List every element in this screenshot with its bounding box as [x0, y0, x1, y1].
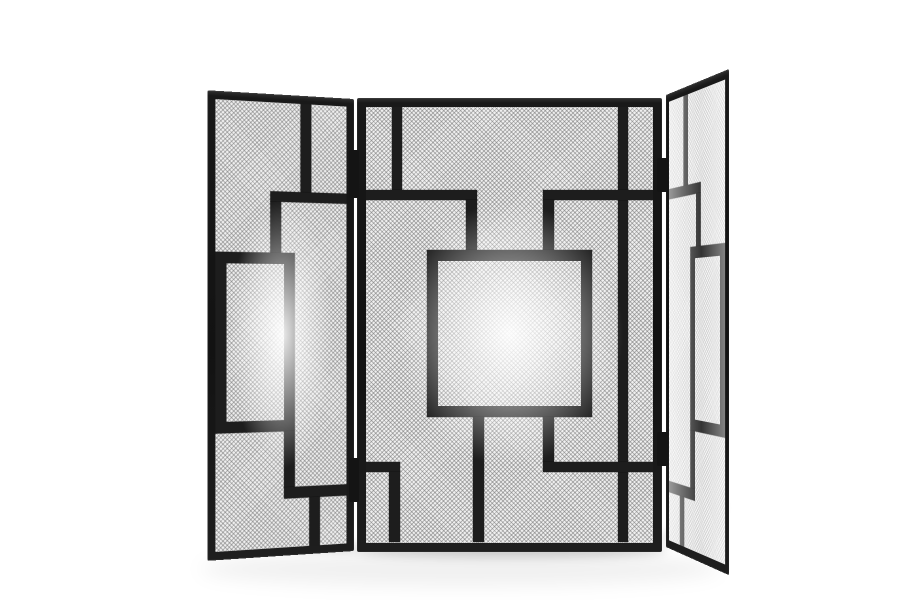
- right-panel-bar-upper-drop-vertical: [696, 193, 701, 247]
- left-panel-bar-upper-drop-vertical: [270, 201, 281, 252]
- center-panel-mesh: [366, 107, 653, 543]
- center-panel-bar-corner-vertical: [389, 472, 400, 542]
- left-panel-bar-upper-horizontal: [270, 191, 346, 204]
- left-hinge-top: [349, 150, 359, 198]
- left-panel-bar-top-vertical: [301, 104, 312, 193]
- ambient-floor-reflection: [200, 552, 720, 586]
- fireplace-screen-product-photo: [0, 0, 900, 600]
- center-panel-bar-upper-drop-left: [466, 200, 477, 250]
- right-panel-bar-middle-rectangle: [690, 243, 725, 438]
- right-panel: [666, 69, 729, 575]
- center-panel-bar-upper-horizontal-right: [543, 190, 653, 200]
- right-panel-mesh: [669, 79, 725, 564]
- center-panel-bar-lower-left-vertical: [473, 417, 484, 542]
- center-panel-bar-lower-horizontal-left: [366, 462, 400, 472]
- left-panel-bar-lower-drop-vertical: [284, 431, 295, 487]
- left-hinge-bottom: [349, 458, 359, 502]
- center-panel-bar-central-square: [427, 250, 592, 417]
- right-hinge-top: [657, 158, 668, 192]
- left-panel: [207, 90, 354, 561]
- center-panel-bar-lower-horizontal-right: [543, 462, 653, 472]
- left-panel-bar-bottom-vertical: [309, 497, 320, 546]
- center-panel-bar-right-long-vertical: [618, 107, 628, 542]
- center-panel-bar-upper-horizontal-left: [366, 190, 477, 200]
- center-panel-bar-top-left-vertical: [392, 107, 402, 192]
- left-panel-bar-middle-rectangle: [215, 252, 294, 434]
- center-panel: [357, 98, 662, 552]
- left-panel-mesh: [215, 99, 346, 552]
- center-panel-bar-lower-drop-right: [543, 417, 554, 462]
- right-panel-bar-top-vertical: [683, 94, 687, 186]
- right-panel-bar-lower-drop-vertical: [690, 430, 695, 489]
- right-panel-bar-bottom-vertical: [680, 496, 684, 547]
- center-panel-bar-upper-drop-right: [543, 200, 554, 250]
- right-hinge-bottom: [657, 432, 668, 466]
